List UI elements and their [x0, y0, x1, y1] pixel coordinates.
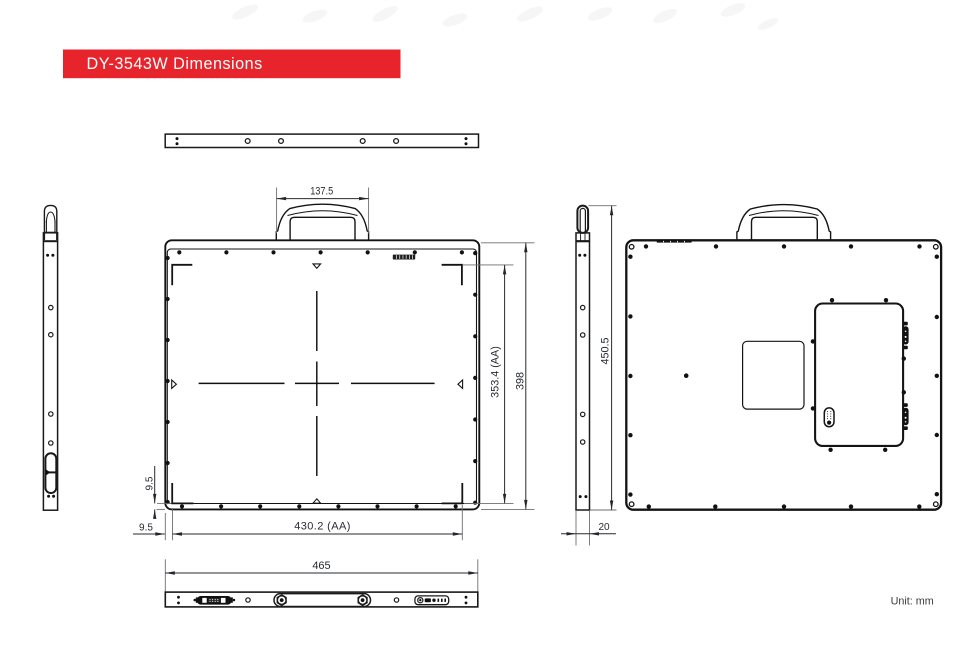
svg-text:137.5: 137.5 — [310, 186, 333, 198]
svg-text:430.2 (AA): 430.2 (AA) — [294, 521, 351, 533]
svg-text:DY-3543W Dimensions: DY-3543W Dimensions — [87, 55, 263, 73]
svg-text:9.5: 9.5 — [144, 476, 155, 490]
svg-text:398: 398 — [514, 372, 526, 390]
svg-text:465: 465 — [312, 560, 330, 572]
svg-text:20: 20 — [598, 522, 610, 533]
svg-text:353.4 (AA): 353.4 (AA) — [490, 346, 502, 398]
svg-text:450.5: 450.5 — [600, 337, 612, 364]
svg-text:9.5: 9.5 — [139, 523, 153, 534]
svg-text:Unit: mm: Unit: mm — [891, 596, 934, 608]
